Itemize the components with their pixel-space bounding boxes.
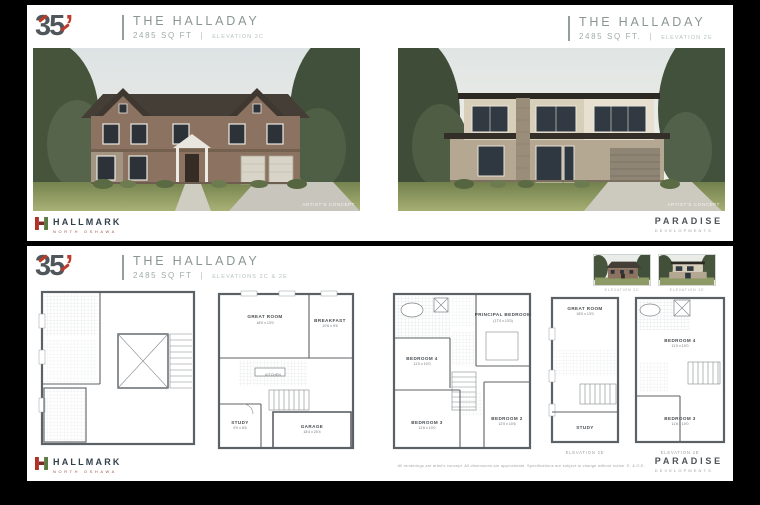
floorplans-sheet: 35’ THE HALLADAY 2485 SQ FT | ELEVATIONS…: [27, 246, 733, 481]
artist-concept-note: ARTIST'S CONCEPT: [667, 202, 720, 207]
stairs: [269, 390, 309, 410]
hallmark-name: HALLMARK: [53, 217, 122, 227]
spec-separator: |: [201, 31, 205, 40]
model-specs: 2485 SQ FT. | ELEVATION 2E: [579, 32, 713, 41]
hallmark-subtitle: NORTH OSHAWA: [53, 469, 122, 474]
stairwell: [118, 334, 192, 388]
bedroom3-dims: 11'6 x 10'0: [419, 426, 436, 430]
lot-35-logo: 35’: [35, 253, 113, 280]
paradise-brand: PARADISE DEVELOPMENTS: [655, 216, 723, 233]
second-floor-drawing: PRINCIPAL BEDROOM (17'0 x 13'0) BEDROOM …: [388, 288, 536, 454]
modern-house: [444, 93, 670, 182]
title-block: THE HALLADAY 2485 SQ FT | ELEVATION 2C: [133, 13, 264, 40]
traditional-house-rendering: ARTIST'S CONCEPT: [33, 48, 360, 211]
floorplan-second: PRINCIPAL BEDROOM (17'0 x 13'0) BEDROOM …: [388, 288, 536, 454]
header-top-left: 35’ THE HALLADAY 2485 SQ FT | ELEVATION …: [35, 13, 264, 40]
elevations-sheet: 35’ THE HALLADAY 2485 SQ FT | ELEVATION …: [27, 5, 733, 241]
kitchen-label: KITCHEN: [265, 373, 281, 377]
bedroom4-label: BEDROOM 4: [664, 338, 695, 343]
model-specs: 2485 SQ FT | ELEVATION 2C: [133, 31, 264, 40]
lot-logo-number: 35: [35, 10, 63, 42]
bedroom3-dims: 11'6 x 10'0: [672, 422, 689, 426]
plan-caption: ELEVATION 2E: [630, 450, 730, 455]
floorplan-ground: GREAT ROOM 18'0 x 13'0 BREAKFAST 10'6 x …: [213, 288, 359, 454]
study-dims: 9'0 x 8'6: [233, 426, 246, 430]
principal-bedroom-label: PRINCIPAL BEDROOM: [475, 312, 531, 317]
stairs: [688, 362, 720, 384]
paradise-name: PARADISE: [655, 456, 723, 466]
thumbnail-traditional-house: [593, 254, 651, 286]
spec-separator: |: [201, 271, 205, 280]
thumbnail-elevation-2e: ELEVATION 2E: [658, 254, 716, 292]
elevation-label: ELEVATIONS 2C & 2E: [212, 274, 288, 280]
sqft-label: 2485 SQ FT.: [579, 32, 642, 41]
paradise-subtitle: DEVELOPMENTS: [655, 228, 723, 233]
bedroom2-dims: 12'0 x 10'6: [498, 422, 515, 426]
great-room-label: GREAT ROOM: [567, 306, 602, 311]
floorplan-alt-ground: GREAT ROOM 18'0 x 13'0 STUDY ELEVATION 2…: [546, 292, 624, 455]
hallmark-wordmark: HALLMARK NORTH OSHAWA: [53, 217, 122, 234]
header-bottom: 35’ THE HALLADAY 2485 SQ FT | ELEVATIONS…: [35, 253, 288, 280]
title-block: THE HALLADAY 2485 SQ FT. | ELEVATION 2E: [579, 14, 713, 41]
hallmark-brand: HALLMARK NORTH OSHAWA: [35, 217, 122, 234]
paradise-brand: PARADISE DEVELOPMENTS: [655, 456, 723, 473]
principal-bedroom-dims: (17'0 x 13'0): [493, 319, 513, 323]
modern-house-rendering: ARTIST'S CONCEPT: [398, 48, 725, 211]
bedroom2-label: BEDROOM 2: [491, 416, 522, 421]
study-label: STUDY: [231, 420, 249, 425]
hallmark-brand: HALLMARK NORTH OSHAWA: [35, 457, 122, 474]
alt-second-drawing: BEDROOM 4 11'0 x 10'0 BEDROOM 3 11'6 x 1…: [630, 292, 730, 448]
traditional-house: [81, 88, 310, 184]
lot-logo-number: 35: [35, 250, 63, 282]
study-label: STUDY: [576, 425, 594, 430]
hallmark-name: HALLMARK: [53, 457, 122, 467]
bedroom4-dims: 11'0 x 10'0: [672, 344, 689, 348]
spec-separator: |: [650, 32, 654, 41]
basement-plan-drawing: [30, 286, 206, 450]
model-specs: 2485 SQ FT | ELEVATIONS 2C & 2E: [133, 271, 288, 280]
model-name: THE HALLADAY: [133, 14, 264, 28]
great-room-dims: 18'0 x 13'0: [256, 321, 273, 325]
header-top-right: THE HALLADAY 2485 SQ FT. | ELEVATION 2E: [568, 14, 713, 41]
rendering-elevation-2c: ARTIST'S CONCEPT: [33, 48, 360, 211]
hallmark-subtitle: NORTH OSHAWA: [53, 229, 122, 234]
hallmark-wordmark: HALLMARK NORTH OSHAWA: [53, 457, 122, 474]
thumbnail-modern-house: [658, 254, 716, 286]
breakfast-label: BREAKFAST: [314, 318, 346, 323]
floorplan-alt-second: BEDROOM 4 11'0 x 10'0 BEDROOM 3 11'6 x 1…: [630, 292, 730, 455]
elevation-label: ELEVATION 2E: [661, 35, 713, 41]
hallmark-h-icon: [35, 217, 48, 230]
sqft-label: 2485 SQ FT: [133, 31, 193, 40]
legal-disclaimer: All renderings are artist's concept. All…: [367, 463, 645, 468]
garage-dims: 18'4 x 20'4: [303, 430, 320, 434]
hallmark-h-icon: [35, 457, 48, 470]
great-room-label: GREAT ROOM: [247, 314, 282, 319]
rendering-elevation-2e: ARTIST'S CONCEPT: [398, 48, 725, 211]
thumbnail-elevation-2c: ELEVATION 2C: [593, 254, 651, 292]
stairs: [580, 384, 616, 404]
breakfast-dims: 10'6 x 9'6: [322, 324, 337, 328]
paradise-subtitle: DEVELOPMENTS: [655, 468, 723, 473]
bedroom4-dims: 11'0 x 10'0: [414, 362, 431, 366]
paradise-name: PARADISE: [655, 216, 723, 226]
ground-floor-drawing: GREAT ROOM 18'0 x 13'0 BREAKFAST 10'6 x …: [213, 288, 359, 454]
sqft-label: 2485 SQ FT: [133, 271, 193, 280]
header-divider: [122, 15, 124, 40]
lot-35-logo: 35’: [35, 13, 113, 40]
alt-ground-drawing: GREAT ROOM 18'0 x 13'0 STUDY: [546, 292, 624, 448]
header-divider: [122, 255, 124, 280]
elevation-label: ELEVATION 2C: [212, 34, 264, 40]
bedroom3-label: BEDROOM 3: [411, 420, 442, 425]
header-divider: [568, 16, 570, 41]
garage-label: GARAGE: [301, 424, 324, 429]
plan-caption: ELEVATION 2E: [546, 450, 624, 455]
model-name: THE HALLADAY: [133, 254, 288, 268]
great-room-dims: 18'0 x 13'0: [576, 312, 593, 316]
bedroom4-label: BEDROOM 4: [406, 356, 437, 361]
model-name: THE HALLADAY: [579, 15, 713, 29]
bedroom3-label: BEDROOM 3: [664, 416, 695, 421]
artist-concept-note: ARTIST'S CONCEPT: [302, 202, 355, 207]
title-block: THE HALLADAY 2485 SQ FT | ELEVATIONS 2C …: [133, 253, 288, 280]
floorplan-basement: [30, 286, 206, 450]
